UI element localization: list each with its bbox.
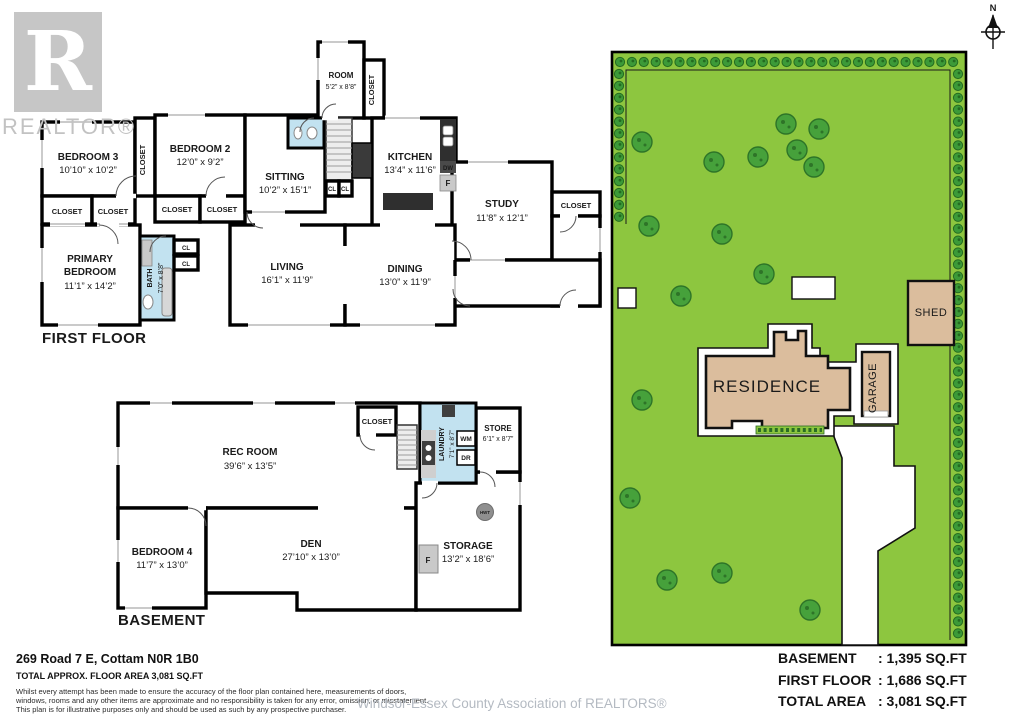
label-wm: WM <box>460 436 472 443</box>
label-dr: DR <box>461 455 471 462</box>
dims-dining: 13’0” x 11’9” <box>379 277 431 288</box>
area-label: FIRST FLOOR <box>778 672 878 694</box>
label-primary-2: BEDROOM <box>64 267 116 278</box>
patio <box>792 277 835 299</box>
label-dw: DW <box>443 166 453 172</box>
label-kitchen: KITCHEN <box>388 152 432 163</box>
property-address: 269 Road 7 E, Cottam N0R 1B0 <box>16 652 199 666</box>
site-plan: RESIDENCE GARAGE SHED N <box>612 3 1005 645</box>
label-closet-4: CLOSET <box>207 205 238 214</box>
label-cl-2: CL <box>182 262 190 268</box>
room-study <box>452 162 552 260</box>
realtor-logo-letter: R <box>24 14 92 110</box>
dims-primary: 11’1” x 14’2” <box>64 281 116 292</box>
room-powder <box>288 118 324 148</box>
north-label: N <box>990 3 997 14</box>
label-closet-study: CLOSET <box>561 201 592 210</box>
area-row-first-floor: FIRST FLOOR : 1,686 SQ.FT <box>778 672 967 694</box>
label-bedroom3: BEDROOM 3 <box>58 152 119 163</box>
room-dining <box>345 225 455 325</box>
sink-icon <box>443 137 453 146</box>
dims-den: 27’10” x 13’0” <box>282 552 340 563</box>
label-cl-3: CL <box>328 187 336 193</box>
realtor-watermark-text: REALTOR® <box>2 114 142 140</box>
label-closet-3: CLOSET <box>162 205 193 214</box>
room-bedroom4 <box>118 508 206 608</box>
stairs-basement <box>397 425 417 469</box>
dims-study: 11’8” x 12’1” <box>476 213 528 224</box>
label-room: ROOM <box>329 71 354 80</box>
bath-vanity <box>142 240 152 266</box>
total-floor-area-line: TOTAL APPROX. FLOOR AREA 3,081 SQ.FT <box>16 671 203 681</box>
label-bath: BATH <box>147 269 154 288</box>
garage-label: GARAGE <box>867 363 879 413</box>
label-laundry: LAUNDRY <box>439 427 446 461</box>
label-hwt: HWT <box>480 510 490 515</box>
room-bedroom2 <box>155 115 245 196</box>
label-storage: STORAGE <box>443 541 493 552</box>
dark-closet <box>352 143 372 178</box>
label-dining: DINING <box>388 264 423 275</box>
room-foyer <box>452 260 600 306</box>
label-closet-1: CLOSET <box>52 207 83 216</box>
realtor-logo-icon: R <box>14 12 102 112</box>
dims-living: 16’1” x 11’9” <box>261 275 313 286</box>
floor-plan-page: RESIDENCE GARAGE SHED N <box>0 0 1024 723</box>
area-row-total: TOTAL AREA : 3,081 SQ.FT <box>778 693 967 715</box>
label-closet-2: CLOSET <box>98 207 129 216</box>
label-store: STORE <box>484 424 512 433</box>
label-cl-1: CL <box>182 246 190 252</box>
label-fridge-ff: F <box>446 179 451 188</box>
basement-title: BASEMENT <box>118 612 205 629</box>
label-living: LIVING <box>270 262 304 273</box>
label-den: DEN <box>300 539 321 550</box>
gate-pad <box>618 288 636 308</box>
area-value: : 1,395 SQ.FT <box>878 650 967 672</box>
dims-sitting: 10’2” x 15’1” <box>259 185 311 196</box>
shed-label: SHED <box>915 307 948 319</box>
label-closet-top: CLOSET <box>367 74 376 105</box>
dims-rec: 39’6” x 13’5” <box>224 461 276 472</box>
opening-rec-den <box>318 502 404 511</box>
dims-bedroom3: 10’10” x 10’2” <box>59 165 117 176</box>
dims-bath: 7’0” x 8’8” <box>158 262 165 293</box>
label-closet-mid: CLOSET <box>138 144 147 175</box>
disclaimer-line-3: This plan is for illustrative purposes o… <box>16 705 346 714</box>
sink-icon <box>443 126 453 135</box>
stairs-first-floor <box>326 118 352 180</box>
first-floor-plan <box>42 42 600 325</box>
area-label: BASEMENT <box>778 650 878 672</box>
dims-store: 6’1” x 8’7” <box>483 436 514 443</box>
first-floor-title: FIRST FLOOR <box>42 330 146 347</box>
dims-storage: 13’2” x 18’6” <box>442 554 494 565</box>
washer-icon <box>422 441 435 465</box>
powder-sink-icon <box>307 127 317 139</box>
opening-living-dining <box>341 246 349 304</box>
association-watermark: Windsor-Essex County Association of REAL… <box>357 696 667 711</box>
room-top <box>318 42 364 118</box>
dims-bedroom2: 12’0” x 9’2” <box>177 157 224 168</box>
label-fridge-bsmt: F <box>426 556 431 565</box>
kitchen-island <box>383 193 433 210</box>
area-value: : 1,686 SQ.FT <box>878 672 967 694</box>
dims-laundry: 7’1” x 8’7” <box>449 430 456 459</box>
label-bedroom4: BEDROOM 4 <box>132 547 193 558</box>
label-cl-4: CL <box>341 187 349 193</box>
toilet-icon <box>143 295 153 309</box>
dims-bedroom4: 11’7” x 13’0” <box>136 560 188 571</box>
area-value: : 3,081 SQ.FT <box>878 693 967 715</box>
dims-room: 5’2” x 8’8” <box>326 84 357 91</box>
label-closet-basement: CLOSET <box>362 417 393 426</box>
residence-label: RESIDENCE <box>713 377 821 396</box>
label-rec: REC ROOM <box>223 447 278 458</box>
washer-drum-icon <box>426 455 432 461</box>
laundry-tub-icon <box>442 405 455 417</box>
area-label: TOTAL AREA <box>778 693 878 715</box>
label-study: STUDY <box>485 199 519 210</box>
label-primary-1: PRIMARY <box>67 254 113 265</box>
opening-kitchen-dining <box>380 222 435 232</box>
disclaimer-line-1: Whilst every attempt has been made to en… <box>16 687 406 696</box>
label-sitting: SITTING <box>265 172 305 183</box>
north-compass-icon: N <box>981 3 1005 49</box>
floor-plan-svg: RESIDENCE GARAGE SHED N <box>0 0 1024 723</box>
label-bedroom2: BEDROOM 2 <box>170 144 231 155</box>
washer-drum-icon <box>426 445 432 451</box>
area-summary: BASEMENT : 1,395 SQ.FT FIRST FLOOR : 1,6… <box>778 650 967 715</box>
dims-kitchen: 13’4” x 11’6” <box>384 165 436 176</box>
basement-plan <box>118 403 520 610</box>
area-row-basement: BASEMENT : 1,395 SQ.FT <box>778 650 967 672</box>
